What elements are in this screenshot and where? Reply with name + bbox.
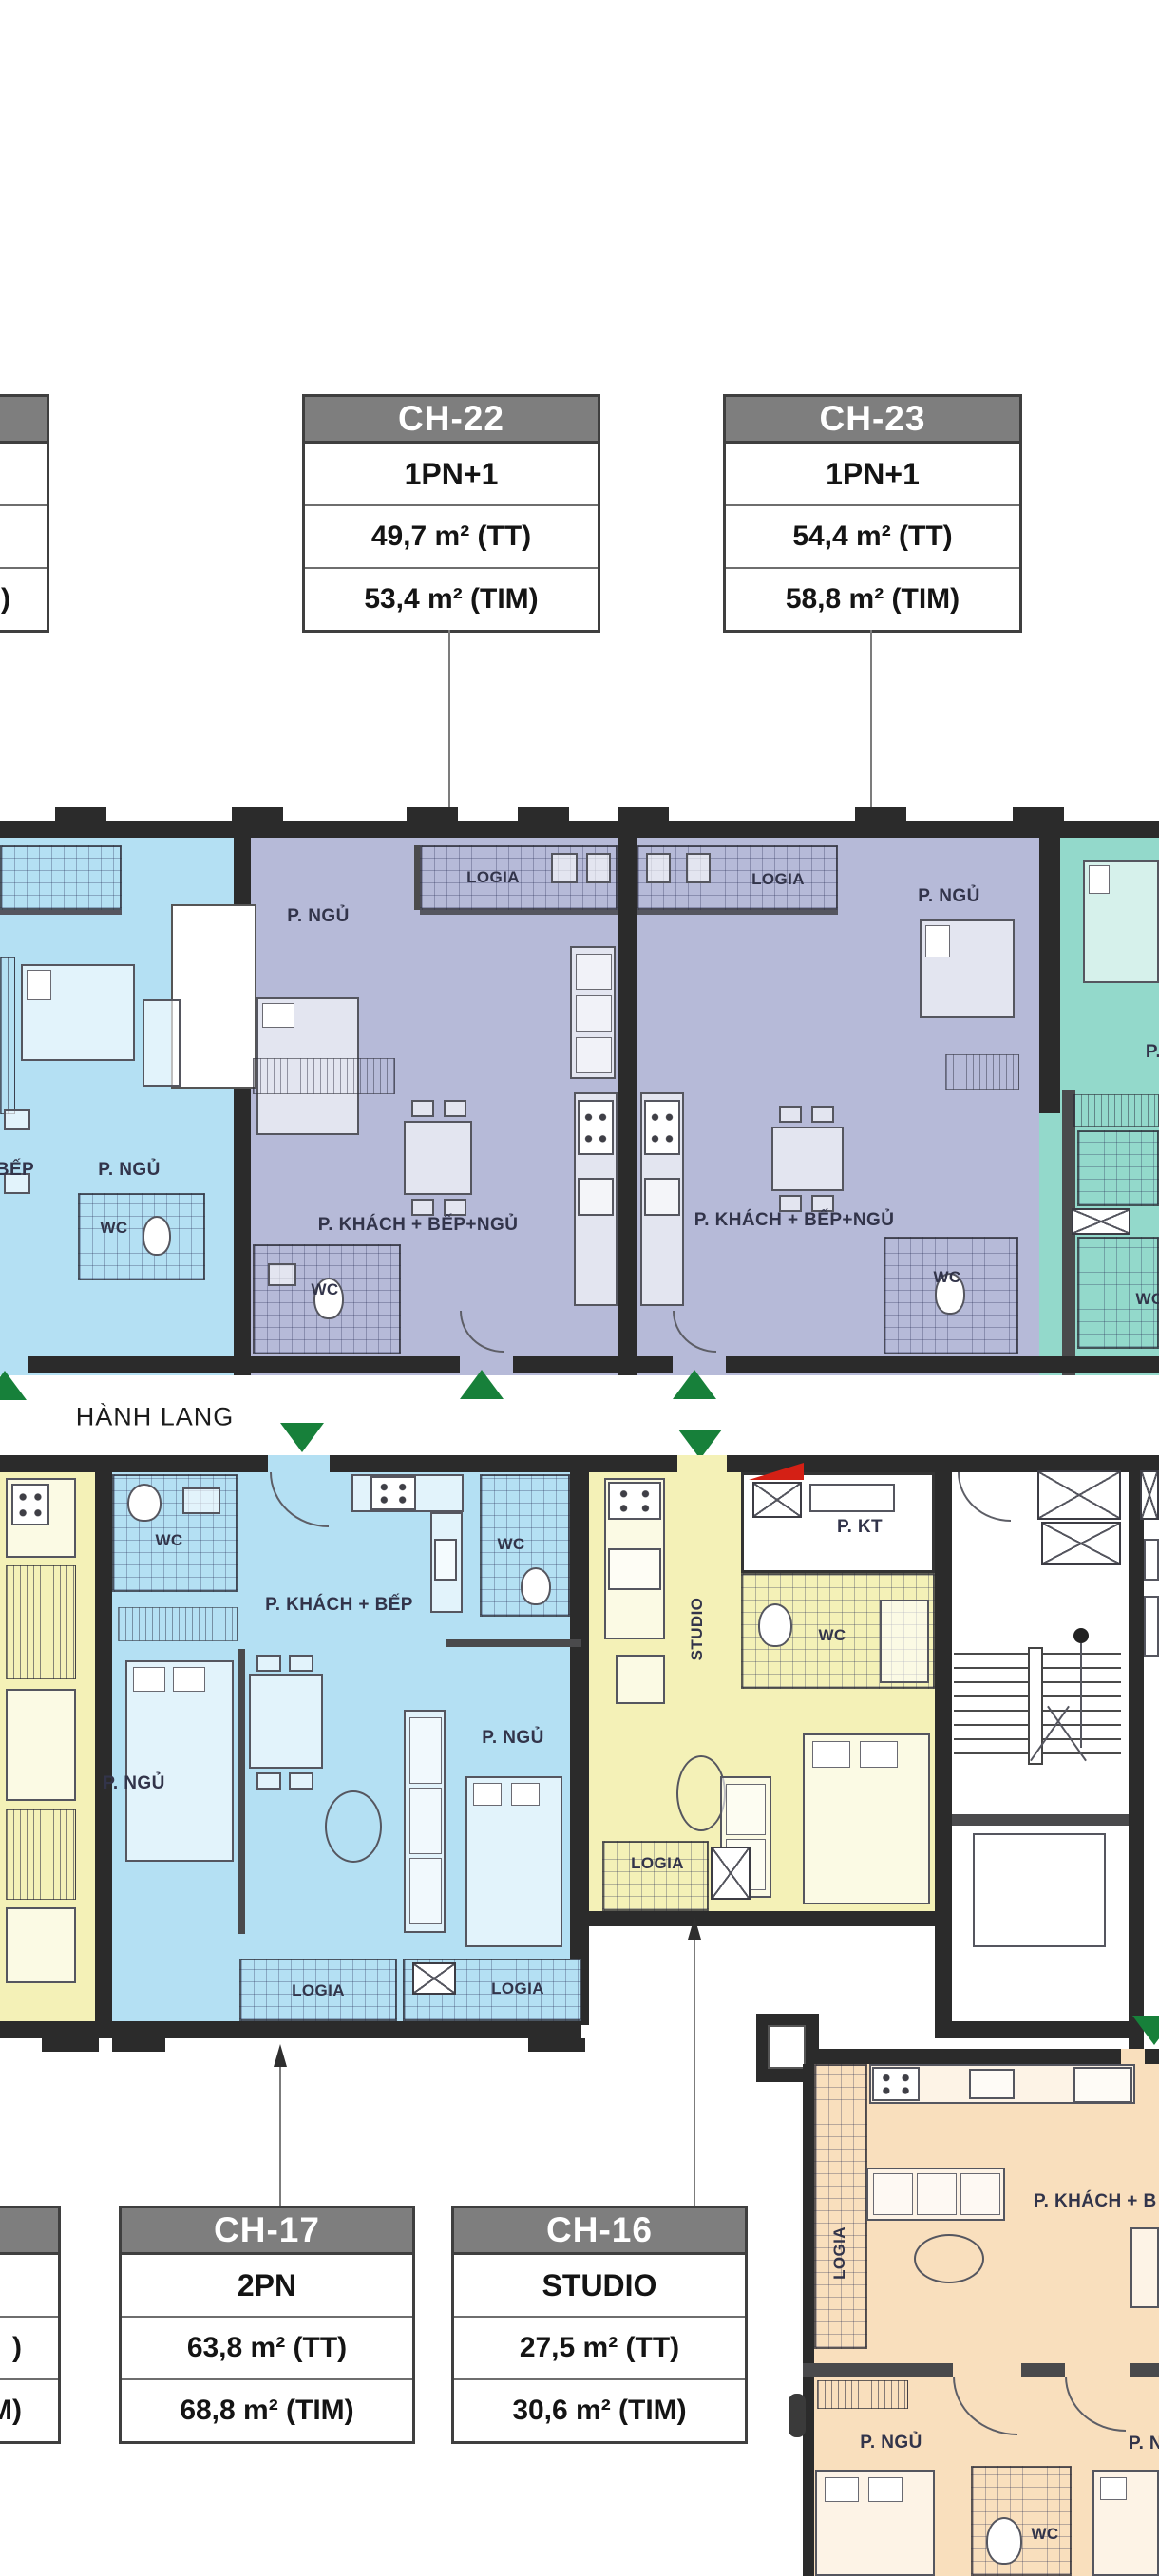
room-label-wc: WC <box>100 1219 127 1238</box>
leader-arrow-ch17 <box>274 2044 287 2067</box>
wc-blue-left-area <box>78 1193 205 1280</box>
leader-arrow-ch16 <box>688 1917 701 1940</box>
room-label-wc: WC <box>497 1535 524 1554</box>
room-label-studio: STUDIO <box>688 1598 707 1661</box>
wall-pilaster <box>617 807 669 821</box>
unit-info-box-ch17: CH-17 2PN 63,8 m² (TT) 68,8 m² (TIM) <box>119 2206 415 2444</box>
unit-area-tim: 53,4 m² (TIM) <box>305 569 598 630</box>
wall-top-lower-2 <box>330 1455 677 1472</box>
entrance-arrow-up-ch22-icon <box>460 1370 503 1399</box>
chair <box>4 1109 30 1130</box>
wall-pilaster <box>55 807 106 821</box>
wall-pilaster <box>42 2038 99 2052</box>
room-label-wc: WC <box>1031 2525 1058 2544</box>
wall-ch17-ch16 <box>570 1455 589 2025</box>
room-label-wc-partial: WC <box>1135 1290 1159 1309</box>
shaft-box <box>1144 1596 1159 1657</box>
room-label-logia: LOGIA <box>491 1979 544 1998</box>
wall-pilaster <box>232 807 283 821</box>
wall-party-ch22-ch23 <box>617 828 636 1375</box>
logia-ch22-window <box>420 910 617 915</box>
unit-area-tim: M) <box>0 2380 58 2441</box>
room-label-wc: WC <box>155 1531 182 1550</box>
stove-icon <box>608 1482 661 1520</box>
pilaster-core <box>768 2025 806 2069</box>
toilet-icon <box>758 1603 792 1647</box>
room-label-logia: LOGIA <box>292 1981 345 2000</box>
unit-area-tt <box>0 506 47 569</box>
room-label-bedroom: P. NGỦ <box>98 1160 160 1181</box>
unit-area-tim: 58,8 m² (TIM) <box>726 569 1019 630</box>
shaft-box <box>1144 1539 1159 1581</box>
wall-orange-inner-2 <box>1021 2363 1065 2377</box>
unit-type <box>0 2255 58 2318</box>
washer-icon <box>412 1962 456 1995</box>
leader-line-ch16 <box>693 1940 695 2206</box>
dining-table <box>249 1674 323 1769</box>
stove-icon <box>644 1100 680 1155</box>
unit-id-header: CH-22 <box>305 397 598 444</box>
logia-blue-left-area <box>0 845 122 910</box>
washer-icon <box>711 1847 750 1900</box>
table <box>616 1655 665 1704</box>
unit-id-header: CH-23 <box>726 397 1019 444</box>
logia-ch22-partition <box>414 845 420 910</box>
unit-type: 2PN <box>122 2255 412 2318</box>
dining-table <box>404 1121 472 1195</box>
room-label-bedroom: P. NGỦ <box>860 2433 921 2453</box>
bed <box>1092 2470 1159 2576</box>
wall-bottom-upper-3 <box>726 1356 1159 1373</box>
stove-icon <box>872 2067 920 2101</box>
room-label-bedroom: P. NGỦ <box>103 1773 164 1794</box>
wardrobe <box>817 2380 908 2409</box>
elevator-shaft-icon <box>1037 1470 1121 1520</box>
washer-icon <box>586 853 611 883</box>
wc-sink <box>268 1263 296 1286</box>
window-line <box>0 910 122 915</box>
chair <box>289 1655 313 1672</box>
chair <box>444 1199 466 1216</box>
unit-info-box-ch16: CH-16 STUDIO 27,5 m² (TT) 30,6 m² (TIM) <box>451 2206 748 2444</box>
shelf <box>809 1484 895 1512</box>
logia-orange-area <box>814 2064 867 2349</box>
wc-sink <box>182 1487 220 1514</box>
wardrobe <box>253 1058 395 1094</box>
chair <box>289 1772 313 1790</box>
room-label-living: P. KHÁCH + BẾP+NGỦ <box>318 1215 519 1236</box>
room-label-wc: WC <box>818 1626 845 1645</box>
shower <box>880 1600 929 1683</box>
chair <box>256 1772 281 1790</box>
kitchen-sink <box>434 1539 457 1581</box>
unit-area-tim: 68,8 m² (TIM) <box>122 2380 412 2441</box>
washer-icon <box>646 853 671 883</box>
entrance-arrow-up-ch23-icon <box>673 1370 716 1399</box>
wall-ch16-bottom <box>581 1911 935 1926</box>
wall-core-right <box>1129 1455 1144 2063</box>
unit-info-box-ch22: CH-22 1PN+1 49,7 m² (TT) 53,4 m² (TIM) <box>302 394 600 633</box>
cabinet <box>6 1689 76 1801</box>
unit-info-box-partial-top: ) <box>0 394 49 633</box>
kitchen-sink <box>644 1178 680 1216</box>
bed <box>21 964 135 1061</box>
window-sill <box>1072 1208 1130 1235</box>
wall-party-ch23-teal <box>1039 828 1060 1113</box>
room-label-bedroom: P. NGỦ <box>918 886 979 907</box>
entrance-arrow-down-orange-icon <box>1132 2016 1159 2045</box>
teal-bath-area <box>1077 1130 1159 1206</box>
wall-orange-top-1 <box>803 2049 1121 2064</box>
wall-core-bottom <box>935 2021 1144 2038</box>
room-label-bedroom: P. NGỦ <box>482 1728 543 1749</box>
wall-lower-bottom <box>0 2021 581 2038</box>
fridge <box>1073 2067 1132 2103</box>
kitchen-sink <box>578 1178 614 1216</box>
wall-pilaster <box>112 2038 165 2052</box>
room-label-living: P. KHÁCH + BẾP <box>265 1595 413 1616</box>
kitchen-sink <box>608 1548 661 1590</box>
entrance-arrow-up-left-icon <box>0 1371 27 1400</box>
unit-area-tt: 27,5 m² (TT) <box>454 2318 745 2380</box>
wall-top-outer <box>0 821 1159 838</box>
room-label-logia: LOGIA <box>466 868 520 887</box>
chair <box>811 1106 834 1123</box>
wall-pilaster <box>1013 807 1064 821</box>
unit-area-tim: ) <box>0 569 47 630</box>
unit-info-box-partial-bottom: ) M) <box>0 2206 61 2444</box>
floor-plan-canvas: ) CH-22 1PN+1 49,7 m² (TT) 53,4 m² (TIM)… <box>0 0 1159 2576</box>
room-label-logia: LOGIA <box>830 2226 849 2280</box>
room-label-logia: LOGIA <box>631 1854 684 1873</box>
rug <box>676 1755 726 1831</box>
chair <box>444 1100 466 1117</box>
wardrobe <box>945 1054 1019 1090</box>
rug <box>325 1790 382 1863</box>
unit-type <box>0 444 47 506</box>
unit-info-box-ch23: CH-23 1PN+1 54,4 m² (TT) 58,8 m² (TIM) <box>723 394 1022 633</box>
unit-id-header: CH-16 <box>454 2208 745 2255</box>
toilet-icon <box>986 2517 1022 2565</box>
bay-window <box>0 957 15 1114</box>
chair <box>411 1100 434 1117</box>
chair <box>411 1199 434 1216</box>
wall-bedroom-ch17 <box>237 1649 245 1934</box>
sofa <box>404 1710 446 1933</box>
room-label-wc: WC <box>311 1280 338 1299</box>
chair <box>256 1655 281 1672</box>
stove-icon <box>578 1100 614 1155</box>
wall-yellow-ch17 <box>95 1455 112 2025</box>
sofa <box>866 2168 1005 2221</box>
wall-top-lower-1 <box>0 1455 268 1472</box>
bed <box>920 919 1015 1018</box>
landing-area <box>973 1833 1106 1947</box>
wall-orange-left <box>803 2064 814 2576</box>
door-handle <box>788 2394 806 2437</box>
wall-bottom-upper-1 <box>28 1356 460 1373</box>
bed <box>125 1660 234 1862</box>
wardrobe <box>118 1607 237 1641</box>
unit-area-tt: 49,7 m² (TT) <box>305 506 598 569</box>
bed <box>465 1776 562 1947</box>
room-label-bedroom-partial: P. <box>1146 1042 1159 1063</box>
wall-bedroom2-ch17 <box>446 1639 581 1647</box>
unit-id-header <box>0 2208 58 2255</box>
closet <box>6 1565 76 1679</box>
unit-type: 1PN+1 <box>726 444 1019 506</box>
corridor-label: HÀNH LANG <box>76 1403 235 1432</box>
wardrobe <box>1073 1094 1159 1127</box>
wall-pilaster <box>518 807 569 821</box>
rug <box>914 2234 984 2283</box>
toilet-icon <box>521 1567 551 1605</box>
room-label-kitchen: BẾP <box>0 1160 34 1181</box>
room-label-bedroom-partial: P. N <box>1129 2434 1159 2454</box>
room-label-living: P. KHÁCH + BẾP+NGỦ <box>694 1210 895 1231</box>
elevator-shaft-icon <box>1041 1522 1121 1565</box>
wall-orange-inner-1 <box>803 2363 953 2377</box>
stove-icon <box>11 1484 49 1525</box>
bed <box>1083 860 1159 983</box>
washer-icon <box>686 853 711 883</box>
room-label-logia: LOGIA <box>751 870 805 889</box>
wall-orange-inner-3 <box>1130 2363 1159 2377</box>
wc-orange-area <box>971 2466 1072 2576</box>
washer-icon <box>551 853 578 883</box>
bed <box>803 1733 930 1904</box>
stove-icon <box>370 1476 416 1510</box>
wall-ch16-core <box>935 1455 952 2025</box>
unit-area-tt: 63,8 m² (TT) <box>122 2318 412 2380</box>
armchair <box>1130 2227 1159 2308</box>
door-arc <box>958 1472 1011 1522</box>
closet <box>6 1809 76 1900</box>
room-label-living-partial: P. KHÁCH + B <box>1034 2191 1157 2212</box>
room-label-wc: WC <box>933 1268 960 1287</box>
dining-table <box>771 1127 844 1191</box>
logia-ch23-window <box>636 910 838 915</box>
logia-ch16-area <box>602 1841 709 1911</box>
stair-start-dot <box>1073 1628 1089 1643</box>
toilet-icon <box>142 1216 171 1256</box>
cabinet <box>6 1907 76 1983</box>
wall-pilaster <box>855 807 906 821</box>
sofa <box>570 946 616 1079</box>
wall-orange-top-2 <box>1145 2049 1159 2064</box>
desk <box>142 999 180 1087</box>
elevator-shaft-icon <box>1140 1470 1159 1520</box>
toilet-icon <box>127 1484 161 1522</box>
stair-direction-line <box>1080 1643 1082 1748</box>
chair <box>779 1106 802 1123</box>
unit-area-tt: 54,4 m² (TT) <box>726 506 1019 569</box>
wall-pilaster <box>528 2038 585 2052</box>
unit-type: 1PN+1 <box>305 444 598 506</box>
unit-id-header <box>0 397 47 444</box>
leader-line-ch17 <box>279 2067 281 2206</box>
room-label-pkt: P. KT <box>837 1517 883 1538</box>
wall-bottom-upper-2 <box>513 1356 673 1373</box>
equipment-box <box>752 1482 802 1518</box>
kitchen-sink <box>969 2069 1015 2099</box>
room-label-bedroom: P. NGỦ <box>287 906 349 927</box>
unit-id-header: CH-17 <box>122 2208 412 2255</box>
bed <box>815 2470 935 2576</box>
wall-pilaster <box>407 807 458 821</box>
entrance-arrow-down-ch17-icon <box>280 1423 324 1452</box>
unit-type: STUDIO <box>454 2255 745 2318</box>
unit-area-tim: 30,6 m² (TIM) <box>454 2380 745 2441</box>
unit-area-tt: ) <box>0 2318 58 2380</box>
facade-recess <box>171 904 256 1089</box>
wall-stair-landing <box>952 1814 1129 1826</box>
